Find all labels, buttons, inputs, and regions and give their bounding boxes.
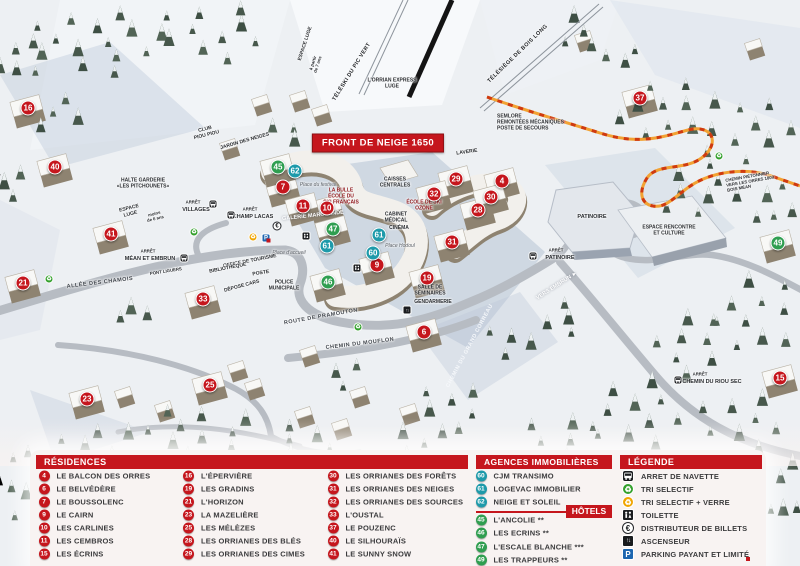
legend-item-label: LE BOUSSOLENC bbox=[57, 498, 124, 507]
legend-item-label: L'ANCOLIE ** bbox=[494, 516, 544, 525]
map-label: CHEMIN DU RIOU SEC bbox=[682, 379, 741, 385]
marker-number: 31 bbox=[328, 484, 339, 495]
map-label: L'ORRIAN EXPRESS LUGE bbox=[368, 78, 417, 90]
map-label: VILLAGES bbox=[182, 207, 210, 213]
map-marker-23: 23 bbox=[80, 392, 95, 407]
residence-item: 37LE POUZENC bbox=[328, 523, 396, 534]
map-label: GALERIE MARCHANDE bbox=[282, 210, 344, 223]
map-label: BIBLIOTHÈQUE bbox=[209, 263, 247, 276]
residence-item: 25LES MÉLÈZES bbox=[183, 523, 255, 534]
map-label: CINÉMA bbox=[389, 226, 409, 232]
bus-icon bbox=[622, 470, 634, 482]
residence-item: 15LES ÉCRINS bbox=[39, 549, 104, 560]
marker-number: 37 bbox=[328, 523, 339, 534]
legend-item-label: LE SUNNY SNOW bbox=[346, 550, 412, 559]
map-label: DÉPOSE CARS bbox=[224, 280, 261, 295]
legend-item-label: ARRET DE NAVETTE bbox=[641, 472, 719, 481]
marker-number: 25 bbox=[183, 523, 194, 534]
map-label: GENDARMERIE bbox=[414, 300, 452, 306]
legend-item-label: L'ÉPERVIÈRE bbox=[201, 472, 252, 481]
map-label: ALLÉE DES CHAMOIS bbox=[66, 276, 133, 290]
marker-number: 21 bbox=[183, 497, 194, 508]
marker-number: 16 bbox=[183, 471, 194, 482]
legende-header: LÉGENDE bbox=[620, 455, 762, 469]
marker-number: 28 bbox=[183, 536, 194, 547]
marker-number: 47 bbox=[476, 541, 487, 552]
map-label: ROUTE DE PRAMOUTON bbox=[284, 307, 359, 326]
elevator-icon: ↑↓ bbox=[622, 535, 634, 547]
map-marker-47: 47 bbox=[326, 222, 341, 237]
residence-item: 7LE BOUSSOLENC bbox=[39, 497, 124, 508]
map-label: à partir de 7 ans bbox=[309, 54, 324, 73]
map-label: TÉLÉSIÈGE DE BOIS LONG bbox=[487, 24, 550, 85]
map-marker-25: 25 bbox=[203, 378, 218, 393]
legend-item-label: LA MAZELIÈRE bbox=[201, 511, 259, 520]
residence-item: 4LE BALCON DES ORRES bbox=[39, 471, 151, 482]
recycle-yellow-icon: ♻ bbox=[249, 233, 258, 242]
agence-item: 61LOGEVAC IMMOBILIER bbox=[476, 484, 581, 495]
legend-item-label: LES ORRIANES DES NEIGES bbox=[346, 485, 455, 494]
map-label: LAVERIE bbox=[456, 149, 478, 158]
bus-icon bbox=[180, 254, 189, 263]
legend-item-label: TOILETTE bbox=[641, 511, 679, 520]
legend-item-label: DISTRIBUTEUR DE BILLETS bbox=[641, 524, 747, 533]
map-label: ESPACE LUGE bbox=[119, 204, 141, 220]
parking-icon: P bbox=[262, 234, 271, 243]
residence-item: 29LES ORRIANES DES CIMES bbox=[183, 549, 305, 560]
legend-item-label: LE CAIRN bbox=[57, 511, 94, 520]
toilet-icon bbox=[302, 232, 311, 241]
hotels-divider bbox=[476, 511, 576, 513]
bus-icon bbox=[209, 200, 218, 209]
marker-number: 62 bbox=[476, 497, 487, 508]
map-marker-16: 16 bbox=[21, 101, 36, 116]
marker-number: 45 bbox=[476, 515, 487, 526]
marker-number: 49 bbox=[476, 554, 487, 565]
legende-item: ♻TRI SELECTIF + VERRE bbox=[622, 496, 730, 508]
map-label: CLUB PIOU PIOU bbox=[192, 124, 220, 141]
map-marker-6: 6 bbox=[417, 325, 432, 340]
map-label: POSTE bbox=[252, 270, 270, 278]
residence-item: 40LE SILHOURAÏS bbox=[328, 536, 407, 547]
residence-item: 30LES ORRIANES DES FORÊTS bbox=[328, 471, 457, 482]
legend-item-label: ASCENSEUR bbox=[641, 537, 690, 546]
legende-item: TOILETTE bbox=[622, 509, 679, 521]
map-label: Place d'accueil bbox=[272, 251, 305, 257]
marker-number: 32 bbox=[328, 497, 339, 508]
legend-panel: RÉSIDENCES AGENCES IMMOBILIÈRES LÉGENDE … bbox=[30, 450, 766, 566]
legend-item-label: LES ORRIANES DES FORÊTS bbox=[346, 472, 457, 481]
map-label: PATINOIRE bbox=[577, 214, 606, 220]
legend-item-label: TRI SELECTIF + VERRE bbox=[641, 498, 730, 507]
hotel-item: 47L'ESCALE BLANCHE *** bbox=[476, 541, 584, 552]
map-marker-10: 10 bbox=[320, 201, 335, 216]
map-marker-11: 11 bbox=[296, 199, 311, 214]
bus-icon bbox=[674, 376, 683, 385]
residence-item: 19LES GRADINS bbox=[183, 484, 254, 495]
map-label: SEMLORE REMONTÉES MÉCANIQUES POSTE DE SE… bbox=[497, 114, 564, 131]
marker-number: 40 bbox=[328, 536, 339, 547]
map-marker-62: 62 bbox=[288, 164, 303, 179]
map-label: CHEMIN PIÉTONNIER VERS LES ORRES 1800 BO… bbox=[725, 170, 775, 193]
parking-icon: P bbox=[622, 548, 634, 560]
legende-item: PPARKING PAYANT ET LIMITÉ bbox=[622, 548, 749, 560]
recycle-green-icon: ♻ bbox=[715, 152, 724, 161]
map-label: PONT LIGUERS bbox=[150, 267, 183, 277]
marker-number: 30 bbox=[328, 471, 339, 482]
euro-icon: € bbox=[273, 222, 282, 231]
hotel-item: 46LES ECRINS ** bbox=[476, 528, 550, 539]
legend-item-label: CJM TRANSIMO bbox=[494, 472, 554, 481]
map-label: CHEMIN DU MOUFLON bbox=[325, 337, 394, 352]
map-marker-4: 4 bbox=[495, 174, 510, 189]
map-marker-61: 61 bbox=[320, 239, 335, 254]
marker-number: 15 bbox=[39, 549, 50, 560]
residence-item: 41LE SUNNY SNOW bbox=[328, 549, 412, 560]
residence-item: 10LES CARLINES bbox=[39, 523, 114, 534]
recycle-green-icon: ♻ bbox=[354, 323, 363, 332]
legend-item-label: LE SILHOURAÏS bbox=[346, 537, 407, 546]
marker-number: 61 bbox=[476, 484, 487, 495]
ski-resort-village-map: FRONT DE NEIGE 1650 ESPACE LUGEà partir … bbox=[0, 0, 800, 566]
legend-item-label: LOGEVAC IMMOBILIER bbox=[494, 485, 581, 494]
map-label: POLICE MUNICIPALE bbox=[269, 280, 300, 292]
legend-item-label: LE BELVÉDÈRE bbox=[57, 485, 116, 494]
map-label: SALLE DE SÉMINAIRES bbox=[414, 285, 445, 297]
toilet-icon bbox=[622, 509, 634, 521]
map-marker-61: 61 bbox=[372, 228, 387, 243]
map-label: MÉAN ET EMBRUN bbox=[125, 256, 175, 262]
legend-item-label: PARKING PAYANT ET LIMITÉ bbox=[641, 550, 749, 559]
marker-number: 23 bbox=[183, 510, 194, 521]
residence-item: 31LES ORRIANES DES NEIGES bbox=[328, 484, 455, 495]
recycle-green-icon: ♻ bbox=[45, 275, 54, 284]
recycle-green-icon: ♻ bbox=[622, 483, 634, 495]
marker-number: 4 bbox=[39, 471, 50, 482]
legend-item-label: LES GRADINS bbox=[201, 485, 254, 494]
map-marker-15: 15 bbox=[773, 371, 788, 386]
map-marker-41: 41 bbox=[104, 227, 119, 242]
hotel-item: 49LES TRAPPEURS ** bbox=[476, 554, 568, 565]
toilet-icon bbox=[353, 264, 362, 273]
map-label: Place du festival bbox=[300, 183, 336, 189]
map-label: ÉCOLE DE SKI OZONE bbox=[406, 200, 441, 212]
residence-item: 23LA MAZELIÈRE bbox=[183, 510, 259, 521]
marker-number: 6 bbox=[39, 484, 50, 495]
map-label: TÉLÉSKI DU PIC VERT bbox=[332, 42, 373, 102]
map-label: ARRÊT bbox=[186, 201, 201, 206]
legend-item-label: LES ÉCRINS bbox=[57, 550, 104, 559]
residence-item: 16L'ÉPERVIÈRE bbox=[183, 471, 252, 482]
agences-header: AGENCES IMMOBILIÈRES bbox=[476, 455, 612, 469]
map-marker-21: 21 bbox=[16, 276, 31, 291]
residence-item: 32LES ORRIANES DES SOURCES bbox=[328, 497, 464, 508]
map-label: ARRÊT bbox=[693, 373, 708, 378]
residence-item: 6LE BELVÉDÈRE bbox=[39, 484, 116, 495]
residence-item: 21L'HORIZON bbox=[183, 497, 244, 508]
marker-number: 41 bbox=[328, 549, 339, 560]
map-marker-29: 29 bbox=[449, 172, 464, 187]
residences-header: RÉSIDENCES bbox=[36, 455, 468, 469]
legend-item-label: LES ECRINS ** bbox=[494, 529, 550, 538]
legend-item-label: LE BALCON DES ORRES bbox=[57, 472, 151, 481]
map-label: JARDIN DES NEIGES bbox=[220, 132, 270, 151]
bus-icon bbox=[529, 252, 538, 261]
euro-icon: € bbox=[622, 522, 634, 534]
legend-item-label: LES TRAPPEURS ** bbox=[494, 555, 568, 564]
recycle-green-icon: ♻ bbox=[190, 228, 199, 237]
map-marker-28: 28 bbox=[471, 203, 486, 218]
legend-item-label: LE POUZENC bbox=[346, 524, 396, 533]
agence-item: 62NEIGE ET SOLEIL bbox=[476, 497, 561, 508]
hotel-item: 45L'ANCOLIE ** bbox=[476, 515, 544, 526]
marker-number: 10 bbox=[39, 523, 50, 534]
legend-item-label: L'ESCALE BLANCHE *** bbox=[494, 542, 584, 551]
map-label: VERS EMBRUN ► bbox=[535, 270, 578, 301]
marker-number: 60 bbox=[476, 471, 487, 482]
map-marker-49: 49 bbox=[771, 236, 786, 251]
legende-item: ↑↓ASCENSEUR bbox=[622, 535, 690, 547]
map-label: CAISSES CENTRALES bbox=[380, 177, 411, 189]
map-marker-46: 46 bbox=[321, 275, 336, 290]
front-de-neige-banner: FRONT DE NEIGE 1650 bbox=[312, 134, 444, 153]
map-label: Place Hodoul bbox=[385, 244, 415, 250]
map-label: PATINOIRE bbox=[545, 255, 574, 261]
residence-item: 28LES ORRIANES DES BLÉS bbox=[183, 536, 301, 547]
legende-item: ♻TRI SELECTIF bbox=[622, 483, 694, 495]
map-marker-32: 32 bbox=[427, 187, 442, 202]
marker-number: 46 bbox=[476, 528, 487, 539]
legend-item-label: LES ORRIANES DES SOURCES bbox=[346, 498, 464, 507]
map-label: ARRÊT bbox=[243, 208, 258, 213]
marker-number: 9 bbox=[39, 510, 50, 521]
agence-item: 60CJM TRANSIMO bbox=[476, 471, 554, 482]
map-marker-37: 37 bbox=[633, 91, 648, 106]
map-label: CHEMIN DU GRAND CORREAU bbox=[445, 303, 495, 389]
map-marker-19: 19 bbox=[420, 271, 435, 286]
legend-item-label: L'OUSTAL bbox=[346, 511, 384, 520]
residence-item: 9LE CAIRN bbox=[39, 510, 94, 521]
recycle-yellow-icon: ♻ bbox=[622, 496, 634, 508]
marker-number: 29 bbox=[183, 549, 194, 560]
legend-item-label: LES ORRIANES DES CIMES bbox=[201, 550, 305, 559]
marker-number: 11 bbox=[39, 536, 50, 547]
legende-item: €DISTRIBUTEUR DE BILLETS bbox=[622, 522, 747, 534]
residence-item: 33L'OUSTAL bbox=[328, 510, 384, 521]
map-label: HALTE GARDERIE «LES PITCHOUNETS» bbox=[117, 178, 170, 190]
map-label: moins de 6 ans bbox=[145, 210, 164, 224]
residence-item: 11LES CEMBROS bbox=[39, 536, 114, 547]
map-marker-45: 45 bbox=[271, 160, 286, 175]
marker-number: 19 bbox=[183, 484, 194, 495]
legend-item-label: LES MÉLÈZES bbox=[201, 524, 255, 533]
legend-item-label: LES ORRIANES DES BLÉS bbox=[201, 537, 301, 546]
marker-number: 7 bbox=[39, 497, 50, 508]
map-label: ESPACE RENCONTRE ET CULTURE bbox=[642, 225, 695, 237]
legend-item-label: LES CARLINES bbox=[57, 524, 114, 533]
map-label: CABINET MÉDICAL bbox=[385, 212, 408, 224]
map-marker-30: 30 bbox=[484, 190, 499, 205]
legend-item-label: L'HORIZON bbox=[201, 498, 244, 507]
legend-item-label: TRI SELECTIF bbox=[641, 485, 694, 494]
hotels-header: HÔTELS bbox=[566, 505, 612, 518]
map-marker-33: 33 bbox=[196, 292, 211, 307]
map-marker-60: 60 bbox=[366, 246, 381, 261]
map-label: ARRÊT bbox=[141, 250, 156, 255]
map-marker-31: 31 bbox=[445, 235, 460, 250]
map-label: ARRÊT bbox=[549, 249, 564, 254]
bus-icon bbox=[227, 211, 236, 220]
map-label: CHAMP LACAS bbox=[233, 214, 274, 220]
map-marker-40: 40 bbox=[48, 160, 63, 175]
elevator-icon: ↑↓ bbox=[403, 306, 412, 315]
marker-number: 33 bbox=[328, 510, 339, 521]
map-marker-7: 7 bbox=[276, 180, 291, 195]
legende-item: ARRET DE NAVETTE bbox=[622, 470, 719, 482]
legend-item-label: LES CEMBROS bbox=[57, 537, 114, 546]
legend-item-label: NEIGE ET SOLEIL bbox=[494, 498, 561, 507]
